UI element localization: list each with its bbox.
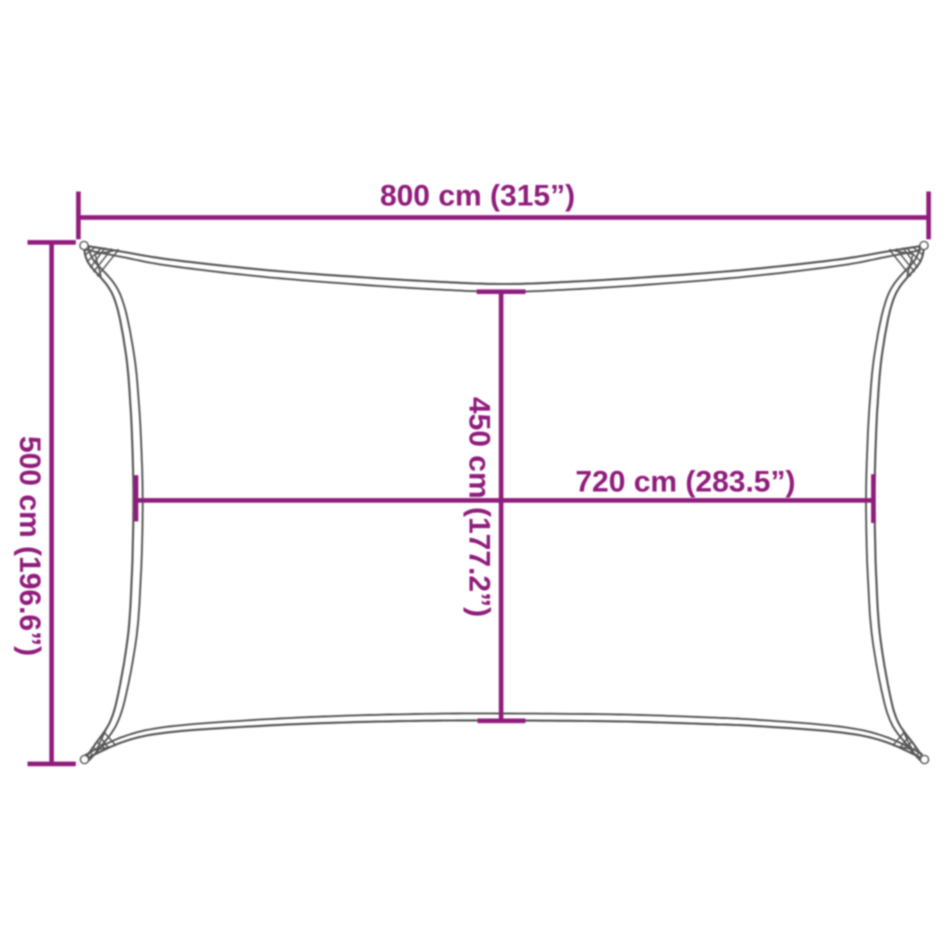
svg-text:800 cm (315”): 800 cm (315”)	[380, 180, 575, 213]
svg-text:720 cm (283.5”): 720 cm (283.5”)	[575, 466, 795, 499]
svg-text:450 cm (177.2”): 450 cm (177.2”)	[463, 397, 496, 617]
svg-text:500 cm (196.6”): 500 cm (196.6”)	[13, 436, 46, 656]
